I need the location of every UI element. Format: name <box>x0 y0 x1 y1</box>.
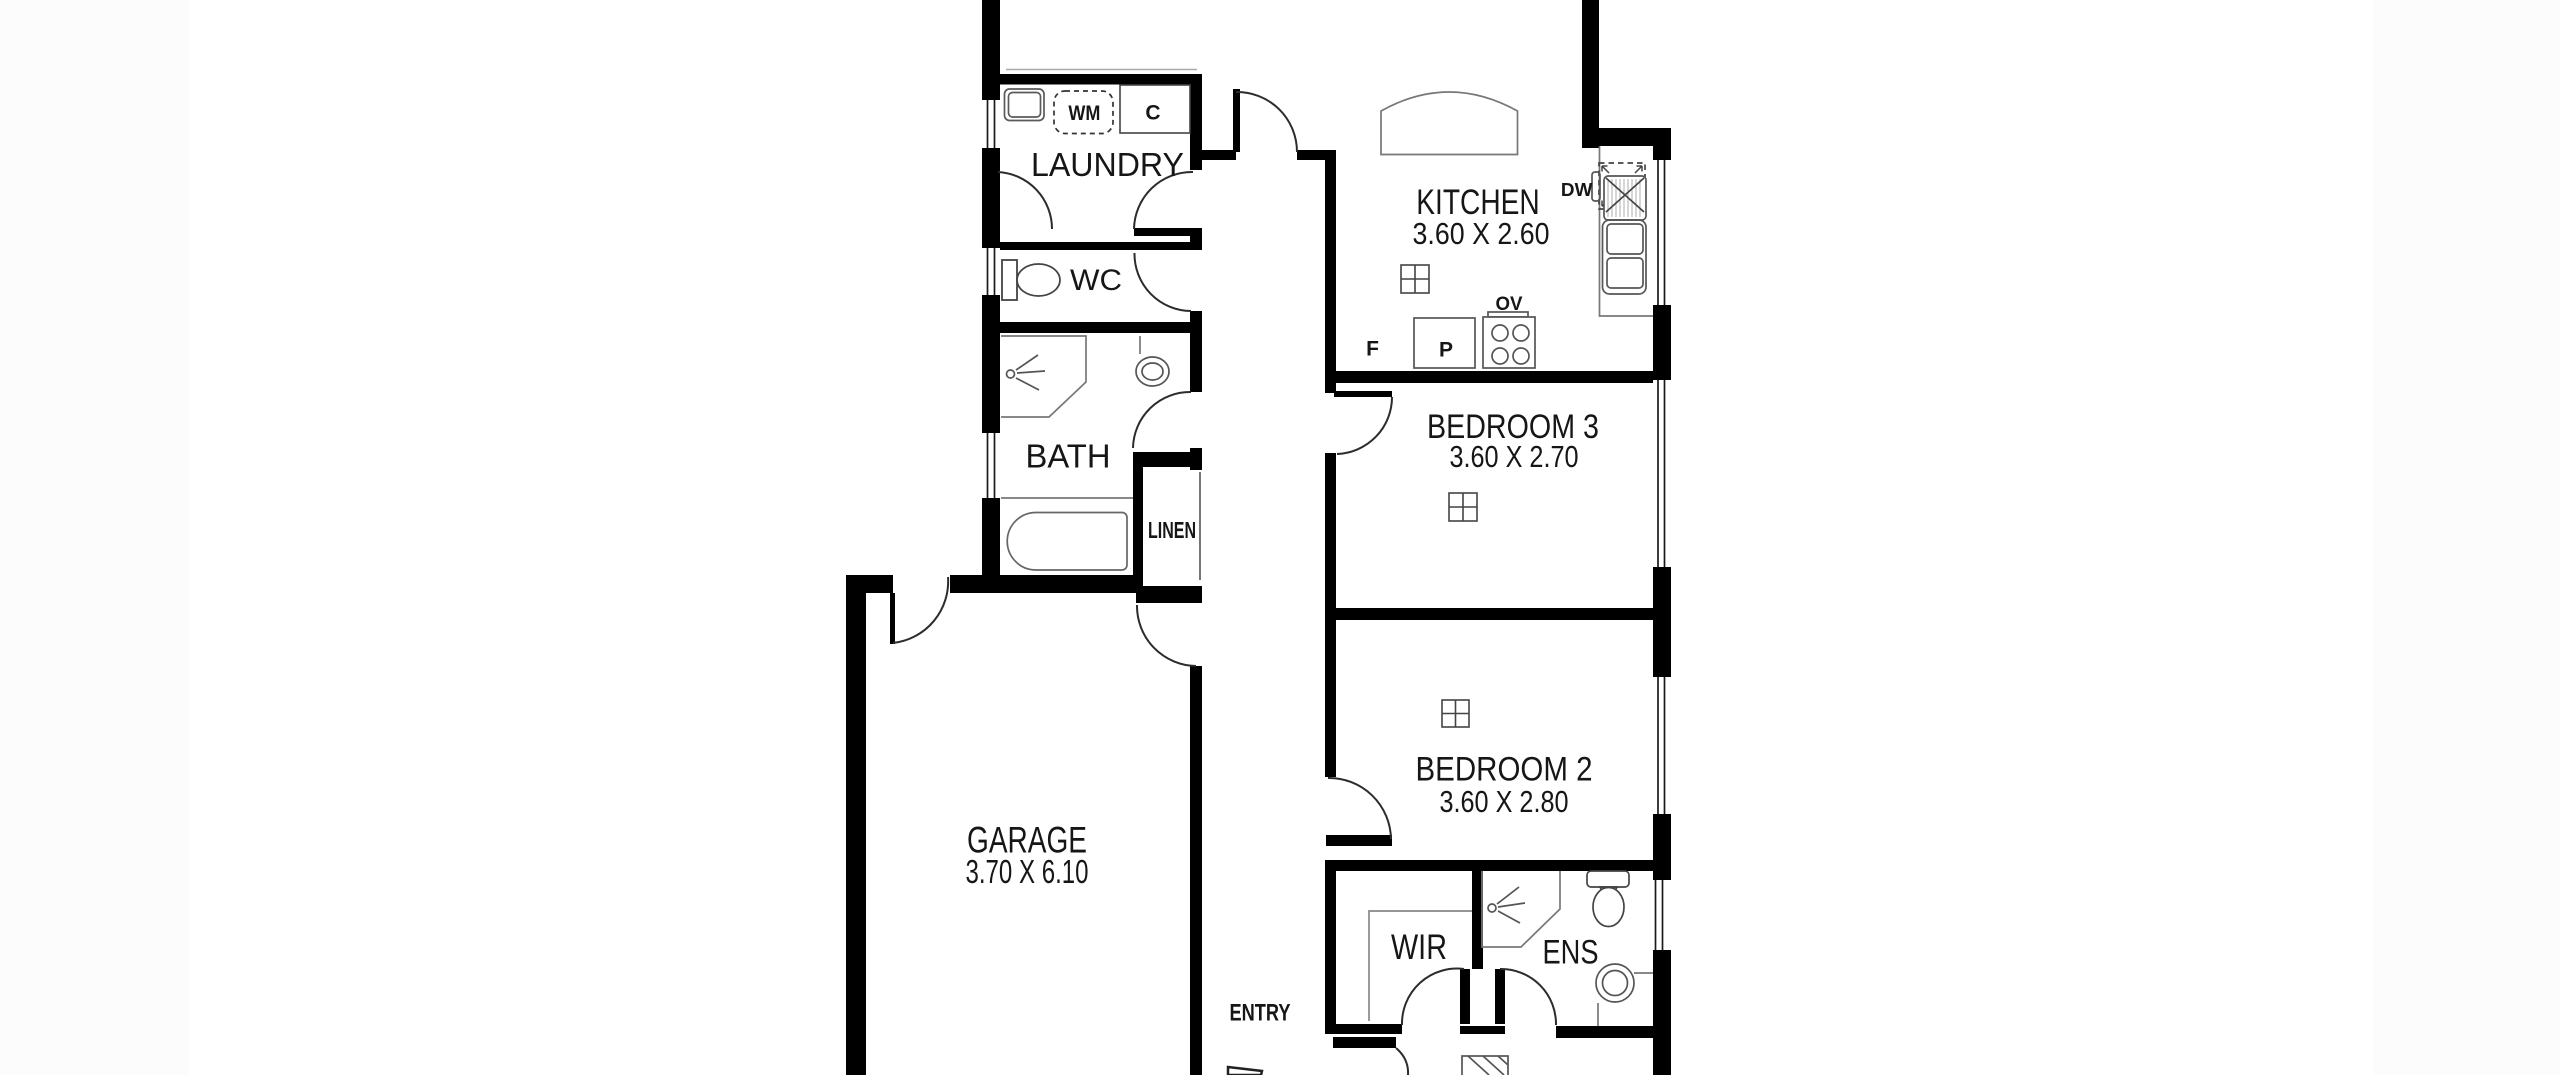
svg-text:BATH: BATH <box>1026 438 1111 475</box>
svg-text:DW: DW <box>1561 180 1593 200</box>
svg-text:LINEN: LINEN <box>1148 517 1196 543</box>
svg-text:ENS: ENS <box>1543 934 1599 972</box>
svg-text:3.60 X 2.80: 3.60 X 2.80 <box>1440 784 1569 819</box>
svg-text:OV: OV <box>1496 294 1523 315</box>
svg-text:P: P <box>1439 339 1453 362</box>
svg-text:F: F <box>1366 338 1379 361</box>
svg-text:WM: WM <box>1068 102 1100 125</box>
svg-text:LAUNDRY: LAUNDRY <box>1031 146 1184 183</box>
svg-text:3.70 X 6.10: 3.70 X 6.10 <box>966 853 1089 890</box>
svg-text:3.60 X 2.60: 3.60 X 2.60 <box>1413 216 1550 251</box>
svg-text:3.60 X 2.70: 3.60 X 2.70 <box>1450 439 1579 474</box>
svg-text:WIR: WIR <box>1391 928 1447 967</box>
svg-text:ENTRY: ENTRY <box>1230 1000 1291 1027</box>
svg-text:WC: WC <box>1070 264 1122 297</box>
svg-text:BEDROOM 2: BEDROOM 2 <box>1416 751 1593 789</box>
svg-text:C: C <box>1145 102 1160 125</box>
